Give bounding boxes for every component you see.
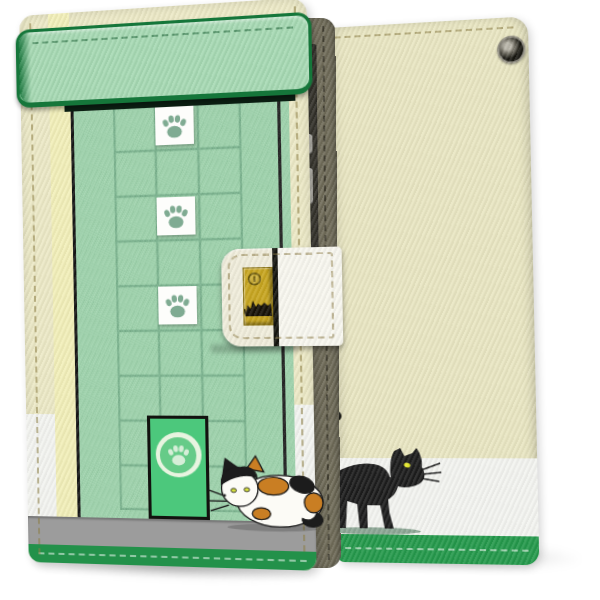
paw-tile <box>155 106 194 146</box>
paw-tile <box>157 196 196 235</box>
cat-door <box>147 416 210 521</box>
calico-cat-illustration <box>207 444 328 534</box>
clasp-buckle <box>243 267 274 326</box>
wrap-stripe-left <box>26 414 56 517</box>
cat-etching-icon <box>244 295 274 318</box>
black-cat-illustration <box>333 448 443 535</box>
stitching-hem <box>38 552 306 562</box>
door-medallion <box>155 432 201 478</box>
back-case-view <box>326 16 539 565</box>
stitching-flap <box>33 26 294 44</box>
stitching-top <box>335 26 514 38</box>
front-case-view <box>19 0 316 571</box>
paw-tile <box>158 286 197 325</box>
clasp-strap <box>221 246 343 346</box>
paw-print-icon <box>160 111 189 140</box>
snap-button-icon <box>244 268 266 291</box>
paw-print-icon <box>165 442 190 467</box>
paw-print-icon <box>162 202 191 231</box>
product-photo <box>0 0 600 600</box>
stitching-hem <box>345 547 528 552</box>
back-hem <box>337 534 539 565</box>
paw-print-icon <box>163 291 192 319</box>
camera-hole-icon <box>497 35 526 64</box>
